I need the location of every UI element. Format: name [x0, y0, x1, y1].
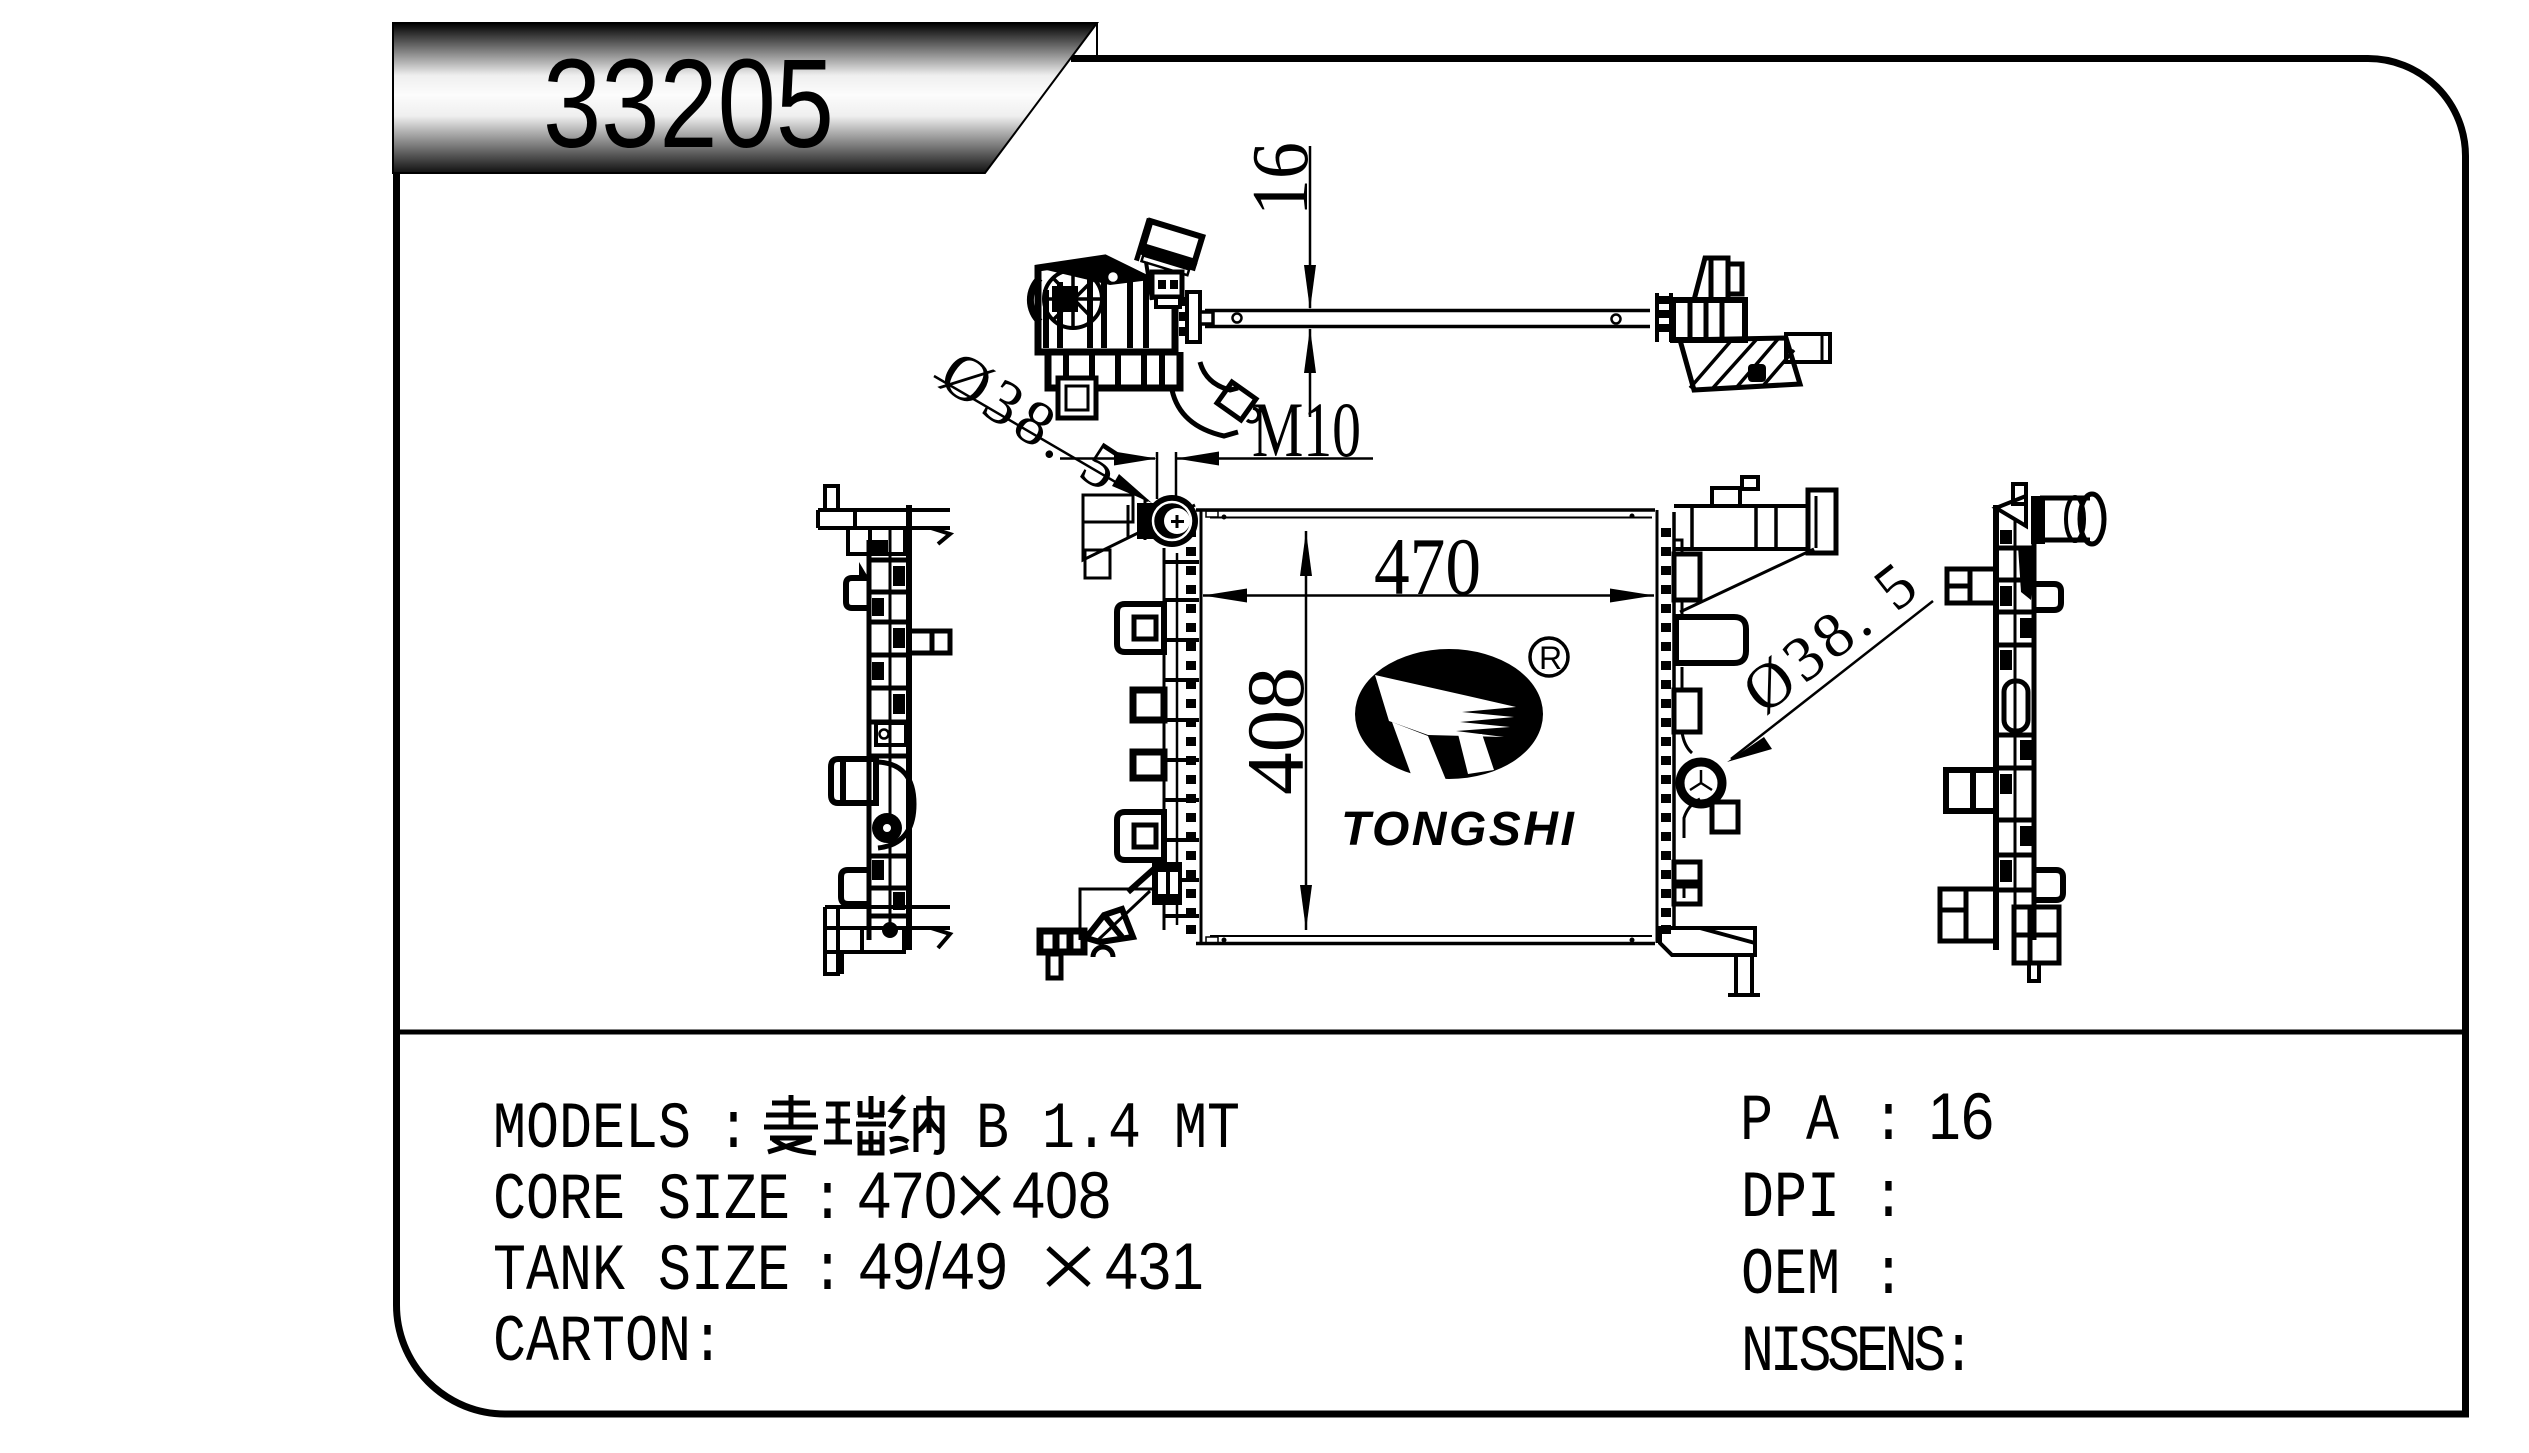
svg-text:R: R — [1539, 640, 1562, 676]
svg-text:M10: M10 — [1252, 386, 1361, 473]
svg-text:470: 470 — [858, 1159, 957, 1233]
svg-text:P A :: P A : — [1740, 1085, 1905, 1160]
svg-text:49/49: 49/49 — [859, 1230, 1008, 1304]
svg-text:CORE SIZE: CORE SIZE — [493, 1164, 790, 1239]
svg-text:470: 470 — [1374, 521, 1481, 612]
svg-text::: : — [1872, 1239, 1905, 1314]
svg-text:16: 16 — [1237, 142, 1325, 216]
svg-text:16: 16 — [1928, 1080, 1994, 1154]
svg-text::: : — [717, 1093, 750, 1168]
svg-text:DPI: DPI — [1741, 1162, 1840, 1237]
svg-text:408: 408 — [1012, 1159, 1111, 1233]
svg-text:TANK SIZE: TANK SIZE — [493, 1235, 790, 1310]
svg-text::: : — [811, 1235, 844, 1310]
svg-text:TONGSHI: TONGSHI — [1341, 803, 1576, 856]
svg-text:B 1.4 MT: B 1.4 MT — [976, 1093, 1240, 1168]
svg-text::: : — [811, 1164, 844, 1239]
svg-text:33205: 33205 — [543, 33, 834, 174]
svg-text:NISSENS:: NISSENS: — [1741, 1316, 1975, 1391]
svg-text:431: 431 — [1105, 1230, 1204, 1304]
svg-text:408: 408 — [1230, 667, 1321, 795]
svg-text::: : — [1872, 1162, 1905, 1237]
svg-text:MODELS: MODELS — [493, 1093, 691, 1168]
svg-text:CARTON:: CARTON: — [493, 1306, 724, 1381]
svg-text:OEM: OEM — [1741, 1239, 1840, 1314]
